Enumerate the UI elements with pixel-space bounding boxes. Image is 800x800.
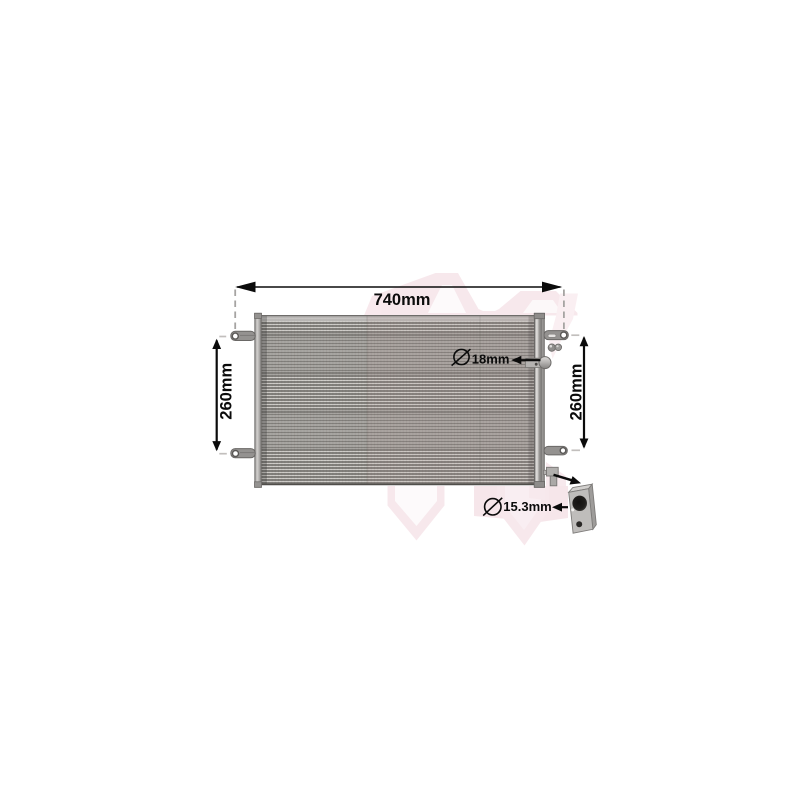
- svg-text:15.3mm: 15.3mm: [503, 499, 551, 514]
- svg-text:18mm: 18mm: [472, 351, 510, 366]
- svg-text:260mm: 260mm: [568, 364, 586, 421]
- svg-text:740mm: 740mm: [374, 291, 431, 309]
- svg-text:260mm: 260mm: [218, 363, 236, 420]
